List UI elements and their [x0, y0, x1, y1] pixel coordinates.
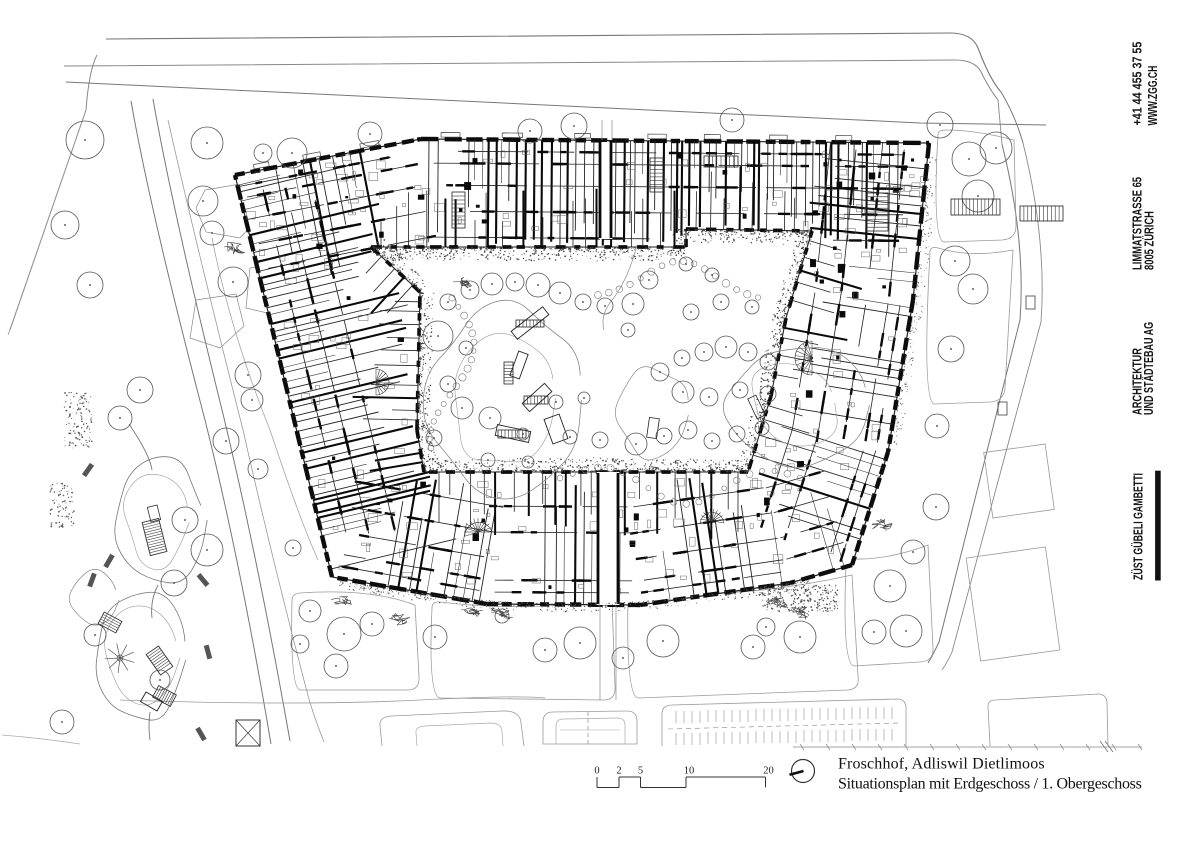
svg-text:Situationsplan mit Erdgeschoss: Situationsplan mit Erdgeschoss / 1. Ober… [838, 776, 1142, 793]
svg-text:20: 20 [763, 766, 774, 777]
svg-text:10: 10 [684, 766, 695, 777]
svg-text:+41 44 455 37 55: +41 44 455 37 55 [1130, 41, 1145, 125]
svg-text:2: 2 [616, 766, 621, 777]
svg-text:UND STÄDTEBAU AG: UND STÄDTEBAU AG [1141, 322, 1156, 415]
svg-text:0: 0 [594, 766, 599, 777]
svg-text:8005 ZÜRICH: 8005 ZÜRICH [1142, 211, 1157, 270]
svg-text:Froschhof, Adliswil Dietlimoos: Froschhof, Adliswil Dietlimoos [838, 756, 1045, 773]
svg-text:WWW.ZGG.CH: WWW.ZGG.CH [1147, 66, 1161, 126]
svg-text:5: 5 [638, 766, 643, 777]
svg-text:ZÜST GÜBELI GAMBETTI: ZÜST GÜBELI GAMBETTI [1131, 473, 1146, 580]
